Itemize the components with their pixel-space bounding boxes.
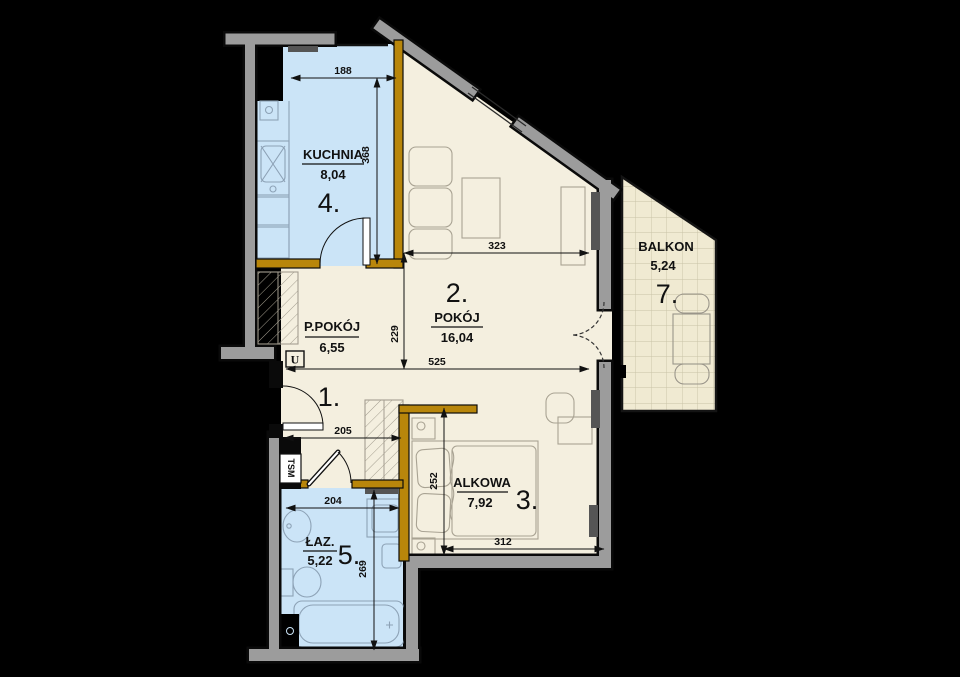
entry-door-leaf [283,423,323,430]
partition-kitchen-bottom-left [256,259,320,268]
floor-plan-page: TSM U 188 368 323 229 525 205 204 269 25… [0,0,960,677]
balcony-notch [619,365,626,378]
dim-living-width: 323 [488,240,506,252]
tsm-label: TSM [286,459,296,478]
bathroom-name: ŁAZ. [306,534,335,549]
partition-alcove-horizontal [399,405,477,413]
utility-label: U [291,353,300,367]
hall-area: 6,55 [319,340,344,355]
living-window-bar [591,192,600,250]
dim-living-hall-width: 525 [428,356,446,368]
bathroom-area: 5,22 [307,553,332,568]
alcove-window-bar-1 [591,390,600,428]
dim-bath-width: 204 [324,495,342,507]
alcove-name: ALKOWA [453,475,511,490]
utility-marker: U [286,351,304,367]
kitchen-number: 4. [318,188,341,218]
dim-kitchen-width: 188 [334,65,352,77]
alcove-number: 3. [516,485,539,515]
balcony-number: 7. [656,279,679,309]
hall-name: P.POKÓJ [304,319,360,334]
dim-hall-width: 205 [334,425,352,437]
floor-plan-drawing: TSM U 188 368 323 229 525 205 204 269 25… [0,0,960,677]
tsm-wall-top [280,437,301,454]
alcove-window-bar-2 [589,505,598,537]
partition-kitchen-right [394,40,403,268]
entry-wall-upper [269,361,283,388]
living-name: POKÓJ [434,310,480,325]
living-area: 16,04 [441,330,474,345]
dim-alcove-height: 252 [428,472,440,490]
partition-bath-right [352,480,403,488]
alcove-area: 7,92 [467,495,492,510]
shaft-tsm: TSM [280,437,301,489]
kitchen-door-leaf [363,218,370,265]
partition-kitchen-bottom-right [366,259,403,268]
bath-shelf-bar [365,488,398,494]
hall-number: 1. [318,382,341,412]
kitchen-window-bar [288,46,318,52]
kitchen-area: 8,04 [320,167,346,182]
entry-wall-lower [269,424,283,438]
living-number: 2. [446,278,469,308]
balcony-area: 5,24 [650,258,676,273]
balcony-name: BALKON [638,239,694,254]
dim-alcove-width: 312 [494,536,512,548]
bath-niche [280,614,299,648]
dim-living-height: 229 [389,325,401,343]
bathroom-number: 5. [338,540,361,570]
kitchen-name: KUCHNIA [303,147,364,162]
